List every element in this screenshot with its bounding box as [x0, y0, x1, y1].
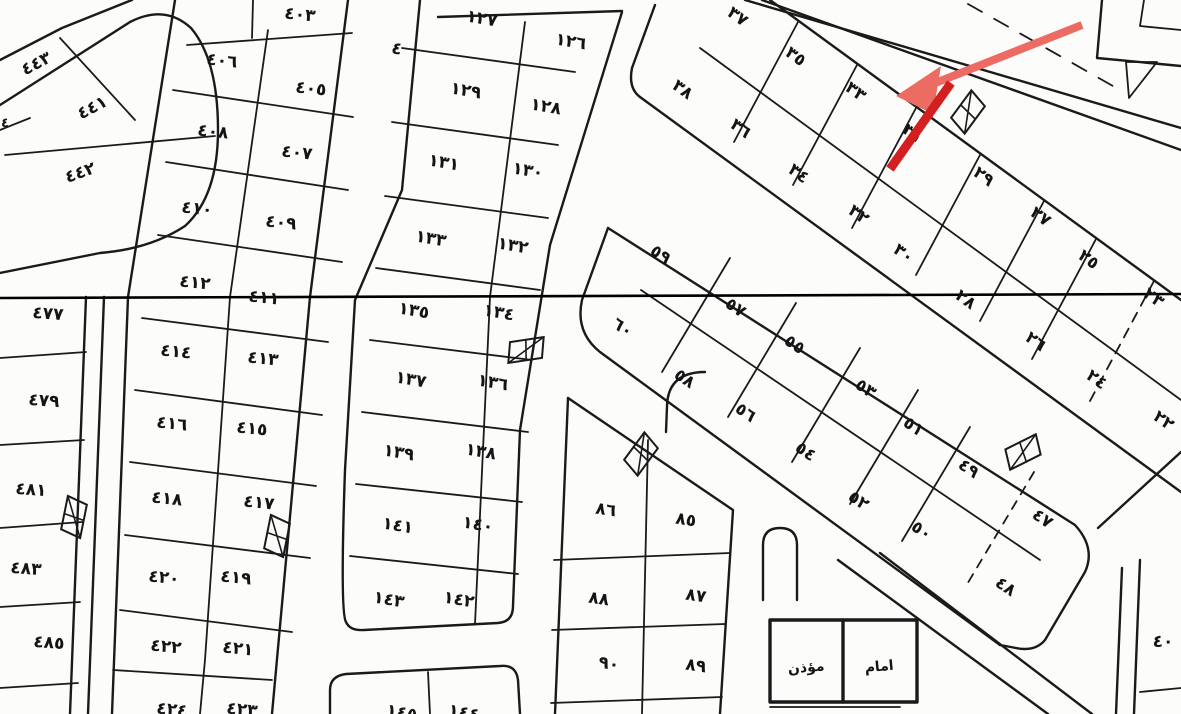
parcel-divider [5, 136, 215, 155]
parcel-label: ٤٩ [954, 455, 983, 484]
survey-flag-icon [504, 335, 548, 365]
parcel-divider [642, 440, 648, 714]
parcel-label: ١٤٥ [385, 700, 419, 714]
parcel-label: ٤٢٢ [149, 635, 183, 658]
parcel-label: ٥٩ [646, 241, 675, 270]
parcel-label: ٣٨ [668, 76, 697, 105]
parcel-divider [187, 33, 352, 45]
parcel-label: ٤٨٣ [10, 558, 43, 580]
parcel-label: ٢٥ [1074, 246, 1103, 274]
block-edge [1134, 560, 1140, 714]
parcel-divider [142, 318, 328, 342]
parcel-label: ٤٠٨ [196, 120, 230, 143]
parcel-label: ٣٧ [723, 3, 752, 32]
parcel-label: ٢٢ [1149, 407, 1178, 436]
parcel-divider [966, 472, 1034, 586]
road-line [745, 0, 1181, 128]
parcel-label: ٤ [1, 116, 9, 131]
block-outline-443 [0, 14, 218, 273]
parcel-label: ٨٩ [684, 655, 708, 678]
road-stub [763, 528, 797, 600]
parcel-divider [113, 670, 272, 680]
parcel-label: ١٣٤ [482, 300, 516, 325]
parcel-label: ٤٠٧ [280, 141, 314, 164]
parcel-label: ٤١٤ [159, 340, 192, 363]
parcel-label: ٢٦ [1021, 328, 1050, 356]
parcel-divider [916, 155, 980, 275]
parcel-label: ٤٨ [991, 573, 1020, 602]
parcel-label: ٦٠ [608, 314, 636, 342]
parcel-divider [0, 522, 82, 528]
parcel-label: ٤٤٣ [18, 47, 55, 80]
parcel-divider [120, 610, 292, 632]
parcel-divider [370, 340, 532, 360]
parcel-label: ١٣٥ [397, 298, 431, 323]
parcel-divider [166, 162, 348, 190]
parcel-label: ٤٢٤ [155, 698, 188, 714]
parcel-divider [356, 484, 522, 502]
parcel-label: ٤٠٣ [283, 3, 317, 26]
parcel-divider [385, 196, 548, 218]
parcel-label: ١٢٨ [529, 94, 564, 119]
parcel-label: ٥٧ [721, 294, 750, 323]
parcel-label: ٥٠ [907, 517, 935, 545]
block-outline-144 [330, 666, 520, 714]
room-label: مؤذن [787, 658, 825, 677]
parcel-label: ١٤٤ [447, 700, 481, 714]
parcel-label: ١٣٨ [464, 439, 499, 464]
parcel-label: ٩٠ [597, 653, 620, 676]
parcel-label: ٤١٠ [180, 197, 213, 220]
parcel-label: ٣٣ [841, 78, 870, 107]
parcel-divider [850, 390, 918, 504]
road-line [1098, 452, 1181, 528]
parcel-label: ١٣٧ [394, 367, 429, 392]
parcel-label: ٤٨٥ [33, 632, 65, 654]
parcel-divider [0, 683, 78, 688]
street-symbol: ٤ [390, 38, 404, 60]
parcel-label: ٤٠٥ [294, 77, 327, 100]
parcel-label: ٤٤١ [74, 92, 111, 124]
parcel-divider [362, 412, 528, 432]
parcel-divider [551, 697, 722, 703]
parcel-label: ٤١١ [247, 286, 280, 309]
parcel-label: ٤٢٣ [225, 698, 259, 714]
parcel-divider [0, 352, 86, 358]
parcel-label: ٤٨١ [15, 479, 47, 501]
plat-map-canvas: ٤٤٣٤٤١٤٤٢٤٤٠٣٤٠٦٤٠٥٤٠٨٤٠٧٤١٠٤٠٩٤١٢٤١١٤١٤… [0, 0, 1181, 714]
parcel-divider [1140, 688, 1181, 692]
parcel-label: ٣٢ [844, 201, 873, 230]
parcel-label: ٢٨ [951, 286, 980, 315]
parcel-label: ١٤٠ [461, 512, 495, 537]
parcel-label: ٨٥ [674, 509, 697, 532]
parcel-label-layer: ٤٤٣٤٤١٤٤٢٤٤٠٣٤٠٦٤٠٥٤٠٨٤٠٧٤١٠٤٠٩٤١٢٤١١٤١٤… [1, 3, 1178, 714]
parcel-label: ٤١٩ [219, 566, 253, 589]
parcel-label: ٤١٢ [178, 271, 212, 294]
road-line [880, 553, 1092, 714]
survey-flag-icon [1000, 432, 1046, 471]
parcel-label: ٨٦ [594, 499, 617, 522]
parcel-label: ١٣٠ [511, 158, 545, 183]
parcel-divider [0, 602, 80, 607]
survey-flag-icon [60, 496, 87, 539]
parcel-label: ١٣٩ [382, 440, 417, 465]
parcel-divider [376, 268, 540, 290]
road-line [88, 297, 104, 714]
parcel-label: ٤٢١ [221, 637, 254, 660]
building-outline [1140, 0, 1181, 30]
parcel-label: ٤٤٢ [62, 158, 99, 188]
parcel-divider [554, 553, 730, 560]
parcel-label: ٣٦ [726, 115, 755, 143]
parcel-label: ٤٧٧ [32, 303, 65, 325]
parcel-label: ١٣٢ [496, 233, 531, 258]
parcel-label: ٤١٨ [150, 487, 184, 510]
parcel-label: ٤١٦ [155, 412, 188, 435]
road-line [762, 0, 1181, 150]
parcel-label: ٥٨ [670, 365, 699, 394]
parcel-label: ١٤١ [381, 513, 415, 538]
parcel-divider [350, 556, 518, 574]
building-outline [1097, 0, 1181, 66]
parcel-divider [0, 440, 84, 445]
parcel-label: ٤٢٠ [147, 566, 180, 589]
building-notch [1126, 62, 1157, 98]
parcel-label: ٥٤ [791, 438, 819, 466]
parcel-label: ٤٧٩ [28, 390, 61, 412]
parcel-divider [902, 427, 970, 541]
parcel-label: ٥٢ [844, 487, 873, 516]
parcel-label: ١٤٣ [372, 587, 407, 612]
parcel-label: ١٢٩ [449, 78, 484, 103]
parcel-divider [252, 0, 253, 38]
parcel-divider [662, 258, 730, 372]
block-edge [70, 297, 86, 714]
parcel-label: ١٢٧ [465, 6, 500, 31]
parcel-divider [392, 122, 558, 145]
parcel-label: ١٣٦ [476, 370, 510, 395]
parcel-label: ١٣١ [427, 150, 461, 175]
parcel-divider [428, 672, 430, 714]
survey-flag-icon [948, 89, 988, 135]
parcel-divider [130, 462, 316, 486]
parcel-label: ٤٠٦ [205, 49, 238, 72]
parcel-divider [158, 235, 342, 262]
cadastral-map-scan: ٤٤٣٤٤١٤٤٢٤٤٠٣٤٠٦٤٠٥٤٠٨٤٠٧٤١٠٤٠٩٤١٢٤١١٤١٤… [0, 0, 1181, 714]
parcel-label: ٤٠ [1153, 632, 1174, 652]
block-edge [770, 0, 1181, 300]
parcel-label: ٥٥ [780, 331, 808, 359]
parcel-label: ٤٧ [1028, 505, 1057, 534]
parcel-label: ١٤٢ [442, 587, 477, 612]
block-edge [1116, 568, 1122, 714]
parcel-label: ٣٠ [889, 240, 918, 268]
parcel-label: ٨٧ [684, 585, 708, 608]
parcel-label: ٣٤ [784, 160, 813, 188]
parcel-divider [135, 390, 322, 415]
parcel-label: ٤١٥ [235, 417, 268, 440]
parcel-label: ١٣٣ [414, 226, 449, 251]
parcel-divider [402, 48, 575, 72]
parcel-label: ٤٠٩ [264, 211, 298, 234]
parcel-label: ٨٨ [587, 588, 611, 611]
block-edge [555, 398, 568, 714]
parcel-divider [552, 624, 725, 630]
parcel-label: ١٢٦ [554, 29, 588, 54]
section-grid-line [0, 294, 1181, 298]
red-arrow-annotation [890, 25, 1082, 169]
parcel-label: ٤١٣ [246, 347, 280, 370]
parcel-label: ٤١٧ [242, 491, 276, 514]
room-label: امام [864, 658, 894, 676]
road-line [0, 0, 132, 60]
